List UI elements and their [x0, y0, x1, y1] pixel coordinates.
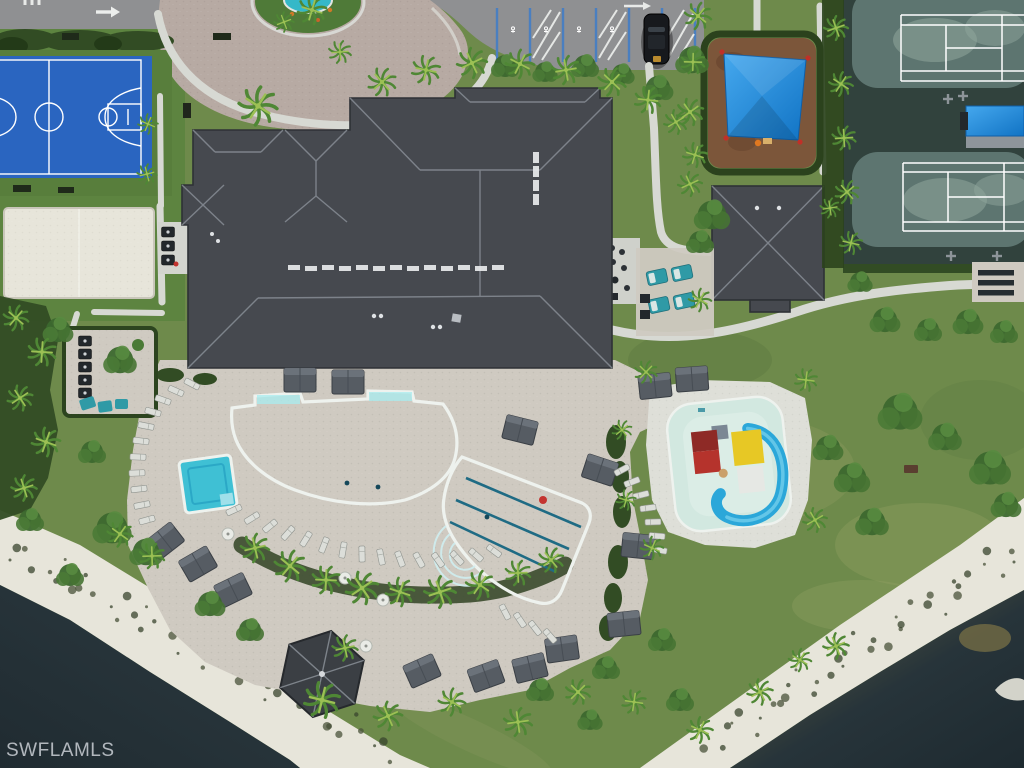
island-flowers — [316, 18, 320, 22]
beach-scrub — [177, 652, 180, 655]
pavilion-roof — [712, 186, 824, 312]
roof-vent — [755, 206, 759, 210]
beach-scrub — [9, 559, 12, 562]
beach-scrub — [145, 605, 148, 608]
beach-scrub — [811, 691, 817, 697]
sail-post — [723, 135, 728, 140]
bench — [978, 280, 1014, 286]
beach-scrub — [123, 592, 132, 601]
sail-post — [719, 49, 724, 54]
tennis-courts — [843, 0, 1024, 302]
sail-post — [805, 55, 810, 60]
swimmer — [485, 515, 490, 520]
beach-scrub — [379, 737, 388, 746]
beach-scrub — [138, 627, 144, 633]
beach-scrub — [48, 570, 52, 574]
beach-scrub — [373, 744, 376, 747]
beach-scrub — [730, 722, 733, 725]
beach-scrub — [68, 586, 77, 595]
cabana — [284, 368, 316, 392]
aerial-scene — [0, 0, 1024, 768]
beach-scrub — [964, 570, 971, 577]
bench — [58, 187, 74, 193]
beach-scrub — [84, 573, 88, 577]
lifeguard-float — [539, 496, 547, 504]
beach-scrub — [755, 733, 759, 737]
beach-scrub — [273, 689, 282, 698]
beach-scrub — [815, 680, 819, 684]
play-canopy-red — [693, 450, 721, 475]
splash-pad — [646, 380, 812, 548]
beach-scrub — [1013, 561, 1016, 564]
beach-scrub — [795, 668, 798, 671]
umbrella-table — [222, 528, 234, 540]
beach-scrub — [64, 558, 67, 561]
beach-scrub — [1009, 549, 1015, 555]
beach-scrub — [263, 698, 266, 701]
cargo-item — [653, 56, 661, 62]
roof-vent — [777, 206, 781, 210]
beach-scrub — [956, 583, 962, 589]
beach-scrub — [983, 563, 986, 566]
island-flowers — [328, 8, 332, 12]
beach-scrub — [22, 546, 28, 552]
side-table — [640, 310, 650, 319]
play-toy — [755, 140, 761, 146]
grill-station — [79, 349, 92, 359]
bench — [978, 270, 1014, 276]
beach-scrub — [871, 637, 877, 643]
patio-walk — [94, 312, 162, 313]
umbrella-table — [360, 640, 372, 652]
beach-scrub — [867, 646, 874, 653]
canopy-bench — [960, 112, 968, 130]
beach-scrub — [953, 591, 962, 600]
grill-row — [79, 336, 92, 398]
beach-scrub — [851, 631, 855, 635]
bench — [62, 33, 79, 40]
grill-station — [79, 375, 92, 385]
bench — [183, 103, 191, 118]
red-item — [174, 262, 179, 267]
grill-station — [79, 362, 92, 372]
side-table — [640, 294, 650, 303]
beach-scrub — [944, 613, 947, 616]
patio-planter — [132, 339, 144, 351]
spa — [179, 455, 238, 514]
beach-scrub — [724, 722, 731, 729]
spectator-pad — [972, 262, 1024, 302]
beach-scrub — [720, 745, 726, 751]
beach-scrub — [927, 592, 934, 599]
tanning-ledge — [369, 392, 412, 401]
spa-steps — [220, 493, 234, 506]
beach-scrub — [358, 728, 364, 734]
aerial-photo: SWFLAMLS — [0, 0, 1024, 768]
sail-post — [797, 139, 802, 144]
cabana — [607, 610, 641, 637]
beach-scrub — [354, 712, 358, 716]
play-canopy-yellow — [731, 429, 764, 466]
beach-scrub — [983, 547, 992, 556]
umbrella-table — [377, 594, 389, 606]
cabana — [332, 370, 364, 394]
beach-scrub — [786, 683, 790, 687]
beach-scrub — [201, 665, 205, 669]
patio-chair — [97, 400, 112, 413]
beach-scrub — [923, 600, 932, 609]
grill-station — [79, 388, 92, 398]
lounge-chair — [645, 519, 661, 525]
parked-suv — [641, 14, 673, 69]
bench — [978, 290, 1014, 296]
beach-scrub — [323, 722, 332, 731]
play-canopy-white — [737, 465, 766, 494]
beach-scrub — [735, 708, 744, 717]
west-building-walk — [160, 96, 161, 206]
beach-scrub — [115, 618, 119, 622]
clubhouse-roof — [182, 88, 612, 368]
watermark: SWFLAMLS — [6, 740, 115, 762]
cabana — [638, 372, 672, 399]
tennis-shade-canopy — [960, 106, 1024, 148]
play-toy — [763, 138, 772, 144]
beach-scrub — [895, 616, 898, 619]
beach-scrub — [771, 701, 777, 707]
lounge-chair — [130, 454, 146, 461]
beach-scrub — [90, 591, 96, 597]
court-surface — [0, 56, 152, 178]
beach-scrub — [110, 605, 113, 608]
play-canopy-maroon — [691, 430, 719, 453]
beach-scrub — [898, 621, 905, 628]
patio-chair — [115, 399, 128, 409]
beach-scrub — [699, 744, 708, 753]
beach-scrub — [1001, 574, 1005, 578]
beach-scrub — [388, 760, 392, 764]
beach-scrub — [884, 642, 893, 651]
playground — [704, 34, 820, 172]
beach-scrub — [841, 665, 844, 668]
beach-scrub — [908, 599, 914, 605]
swimmer — [376, 485, 381, 490]
beach-scrub — [12, 544, 21, 553]
lawn-bench — [904, 465, 918, 473]
beach-scrub — [152, 619, 156, 623]
splash-marking — [698, 408, 705, 412]
beach-scrub — [131, 611, 138, 618]
shallow-amber-patch — [959, 624, 1011, 652]
beach-scrub — [335, 731, 342, 738]
bench — [213, 33, 231, 40]
cabana — [675, 366, 709, 392]
beach-scrub — [952, 579, 956, 583]
daybed-patio — [636, 248, 714, 336]
grill-station — [79, 336, 92, 346]
swimmer — [345, 481, 350, 486]
bench — [13, 185, 31, 192]
beach-scrub — [777, 700, 784, 707]
tanning-ledge — [257, 395, 300, 404]
lounge-chair — [129, 470, 145, 477]
beach-scrub — [28, 566, 35, 573]
deck-bed — [156, 368, 184, 382]
beach-scrub — [759, 717, 762, 720]
lounge-chair — [359, 546, 365, 562]
beach-scrub — [827, 672, 834, 679]
